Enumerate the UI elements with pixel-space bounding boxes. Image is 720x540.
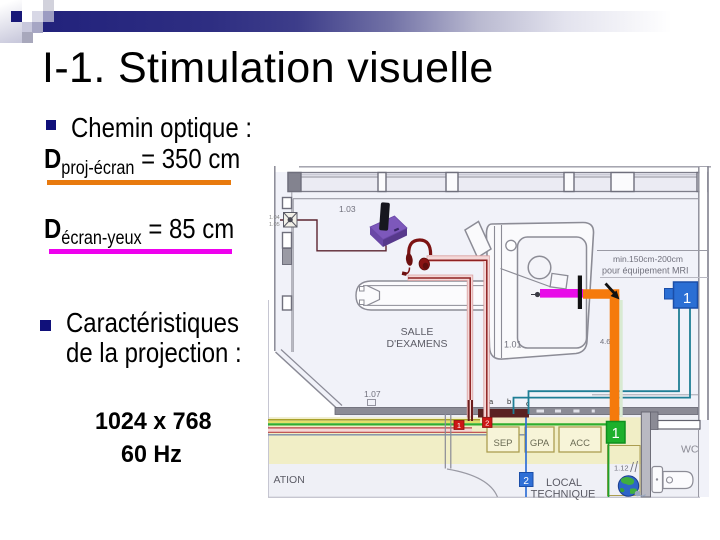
svg-text:4.6: 4.6 bbox=[600, 337, 610, 346]
svg-text:min.150cm-200cm: min.150cm-200cm bbox=[613, 254, 683, 264]
svg-text:b: b bbox=[507, 397, 511, 406]
svg-text:2: 2 bbox=[485, 419, 489, 428]
svg-text:pour équipement MRI: pour équipement MRI bbox=[602, 266, 689, 276]
svg-text:LOCAL: LOCAL bbox=[546, 477, 582, 489]
svg-text:SALLE: SALLE bbox=[401, 326, 434, 338]
svg-text:1.07: 1.07 bbox=[364, 389, 381, 399]
svg-text:TECHNIQUE: TECHNIQUE bbox=[531, 489, 596, 501]
svg-text:1.01: 1.01 bbox=[504, 340, 522, 350]
svg-text:1.05: 1.05 bbox=[269, 222, 280, 228]
svg-text:ATION: ATION bbox=[274, 474, 305, 486]
svg-text:1: 1 bbox=[457, 421, 461, 430]
svg-text:WC: WC bbox=[681, 444, 699, 456]
svg-text:ACC: ACC bbox=[570, 438, 590, 449]
svg-text:1.03: 1.03 bbox=[339, 204, 356, 214]
svg-text:1.04: 1.04 bbox=[269, 215, 280, 221]
svg-text:GPA: GPA bbox=[530, 438, 550, 449]
svg-text:SEP: SEP bbox=[493, 438, 512, 449]
svg-text:1: 1 bbox=[612, 426, 620, 442]
svg-text:1.12: 1.12 bbox=[614, 464, 629, 473]
svg-text:1: 1 bbox=[683, 290, 691, 307]
svg-text:2: 2 bbox=[523, 476, 529, 487]
svg-text:D'EXAMENS: D'EXAMENS bbox=[387, 338, 448, 350]
